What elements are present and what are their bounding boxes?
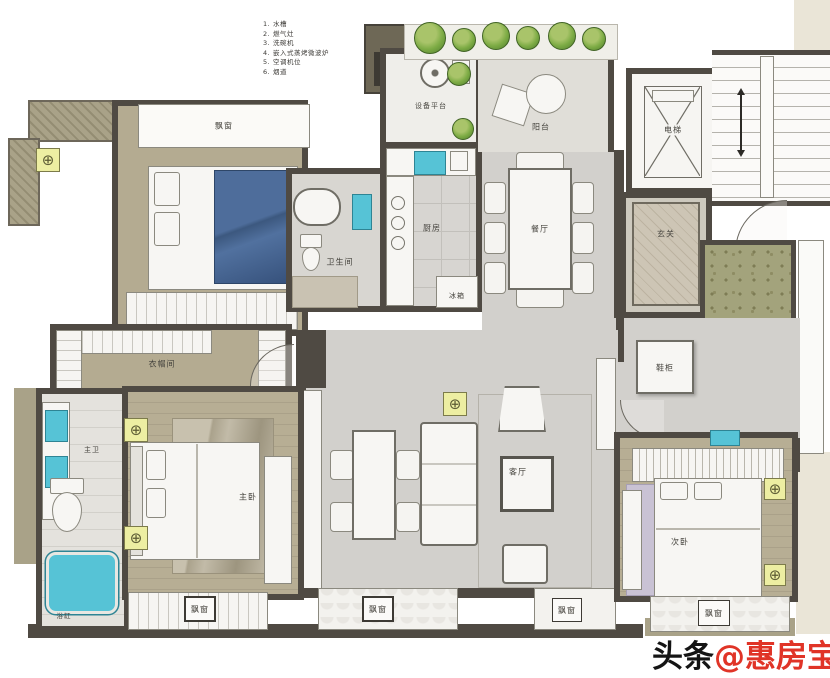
master-bathtub: [46, 552, 118, 614]
bay-label-box: 飘窗: [552, 598, 582, 622]
closet-label: 衣帽间: [149, 359, 176, 370]
bed-blanket-blue: [214, 170, 296, 284]
bathtub-top: [293, 188, 341, 226]
decor-teal: [710, 430, 740, 446]
master-bath-label: 主卫: [84, 445, 100, 455]
dining-chair: [484, 182, 506, 214]
olive-band-left: [14, 388, 38, 564]
bay-window-label: 飘窗: [215, 121, 233, 132]
dining-label: 餐厅: [531, 224, 549, 235]
building-corridor: [798, 240, 824, 454]
bedroom2-label: 次卧: [671, 537, 689, 548]
kitchen-appliance: [450, 151, 468, 171]
foyer-label: 玄关: [657, 229, 675, 240]
wardrobe-bedroom2: [632, 448, 784, 482]
toilet-tank: [300, 234, 322, 248]
kitchen-sink: [414, 151, 446, 175]
armchair: [502, 544, 548, 584]
fridge-label: 冰箱: [449, 291, 465, 301]
balcony-table-round: [526, 74, 566, 114]
plant-icon: [548, 22, 576, 50]
bed-fold-line: [656, 528, 760, 530]
dining-chair: [572, 262, 594, 294]
dining-chair: [572, 222, 594, 254]
cooktop-burner: [391, 216, 405, 230]
plant-icon: [414, 22, 446, 54]
tea-chair: [396, 502, 420, 532]
watermark-prefix: 头条: [652, 639, 714, 675]
bathroom-top-label: 卫生间: [327, 257, 354, 268]
sink-teal: [352, 194, 372, 230]
plant-icon: [516, 26, 540, 50]
side-cabinet: [596, 358, 616, 450]
master-label: 主卧: [239, 492, 257, 503]
balcony-label: 阳台: [532, 122, 550, 133]
plant-icon: [482, 22, 510, 50]
dining-chair: [484, 222, 506, 254]
floor-plan: 1.水槽 2.燃气灶 3.洗碗机 4.嵌入式蒸烤微波炉 5.空调机位 6.烟道 …: [0, 0, 830, 678]
light-symbol: ⊕: [124, 418, 148, 442]
closet-cabinet-top: [62, 330, 212, 354]
tea-table: [352, 430, 396, 540]
wall-column: [296, 330, 326, 388]
kitchen-label: 厨房: [423, 223, 441, 234]
plant-icon: [452, 28, 476, 52]
watermark-handle: @惠房宝: [714, 639, 830, 675]
desk-bedroom2: [622, 490, 642, 590]
cooktop-burner: [391, 236, 405, 250]
pillow: [694, 482, 722, 500]
ac-unit-symbol: ⊕: [36, 148, 60, 172]
neighbor-space-bottom-right: [796, 452, 830, 634]
living-label: 客厅: [509, 467, 527, 478]
watermark: 头条@惠房宝: [652, 631, 830, 676]
equipment-label: 设备平台: [415, 101, 447, 111]
washer-icon: [420, 58, 450, 88]
plant-icon: [582, 27, 606, 51]
pillow: [154, 212, 180, 246]
pillow: [660, 482, 688, 500]
bed-fold-line: [196, 444, 198, 558]
pillow: [146, 450, 166, 480]
plant-icon: [447, 62, 471, 86]
master-dresser: [264, 456, 292, 584]
stair-rail: [760, 56, 774, 198]
shoe-cabinet-label: 鞋柜: [656, 363, 674, 374]
ac-platform-topleft: [28, 100, 116, 142]
elevator-label: 电梯: [662, 125, 684, 136]
elevator-panel: [652, 90, 694, 102]
tub-label: 浴缸: [57, 610, 72, 620]
floor-lamp-shade: [498, 386, 546, 432]
coffee-table: [500, 456, 554, 512]
dining-chair: [572, 182, 594, 214]
light-symbol: ⊕: [764, 478, 786, 500]
bay-label-box: 飘窗: [698, 600, 730, 626]
tea-chair: [330, 502, 354, 532]
shower-zone: [292, 276, 358, 308]
light-symbol: ⊕: [764, 564, 786, 586]
tea-chair: [330, 450, 354, 480]
light-symbol: ⊕: [124, 526, 148, 550]
sofa-long: [420, 422, 478, 546]
light-symbol: ⊕: [443, 392, 467, 416]
dining-chair: [484, 262, 506, 294]
pillow: [154, 172, 180, 206]
cooktop-burner: [391, 196, 405, 210]
closet-cabinet-left: [56, 330, 82, 390]
foyer-rug: [632, 202, 700, 306]
tea-chair: [396, 450, 420, 480]
bay-label-box: 飘窗: [362, 596, 394, 622]
plant-icon: [452, 118, 474, 140]
stair-arrow-line: [740, 94, 742, 152]
sink-teal: [45, 410, 68, 442]
bay-label-box: 飘窗: [184, 596, 216, 622]
pillow: [146, 488, 166, 518]
